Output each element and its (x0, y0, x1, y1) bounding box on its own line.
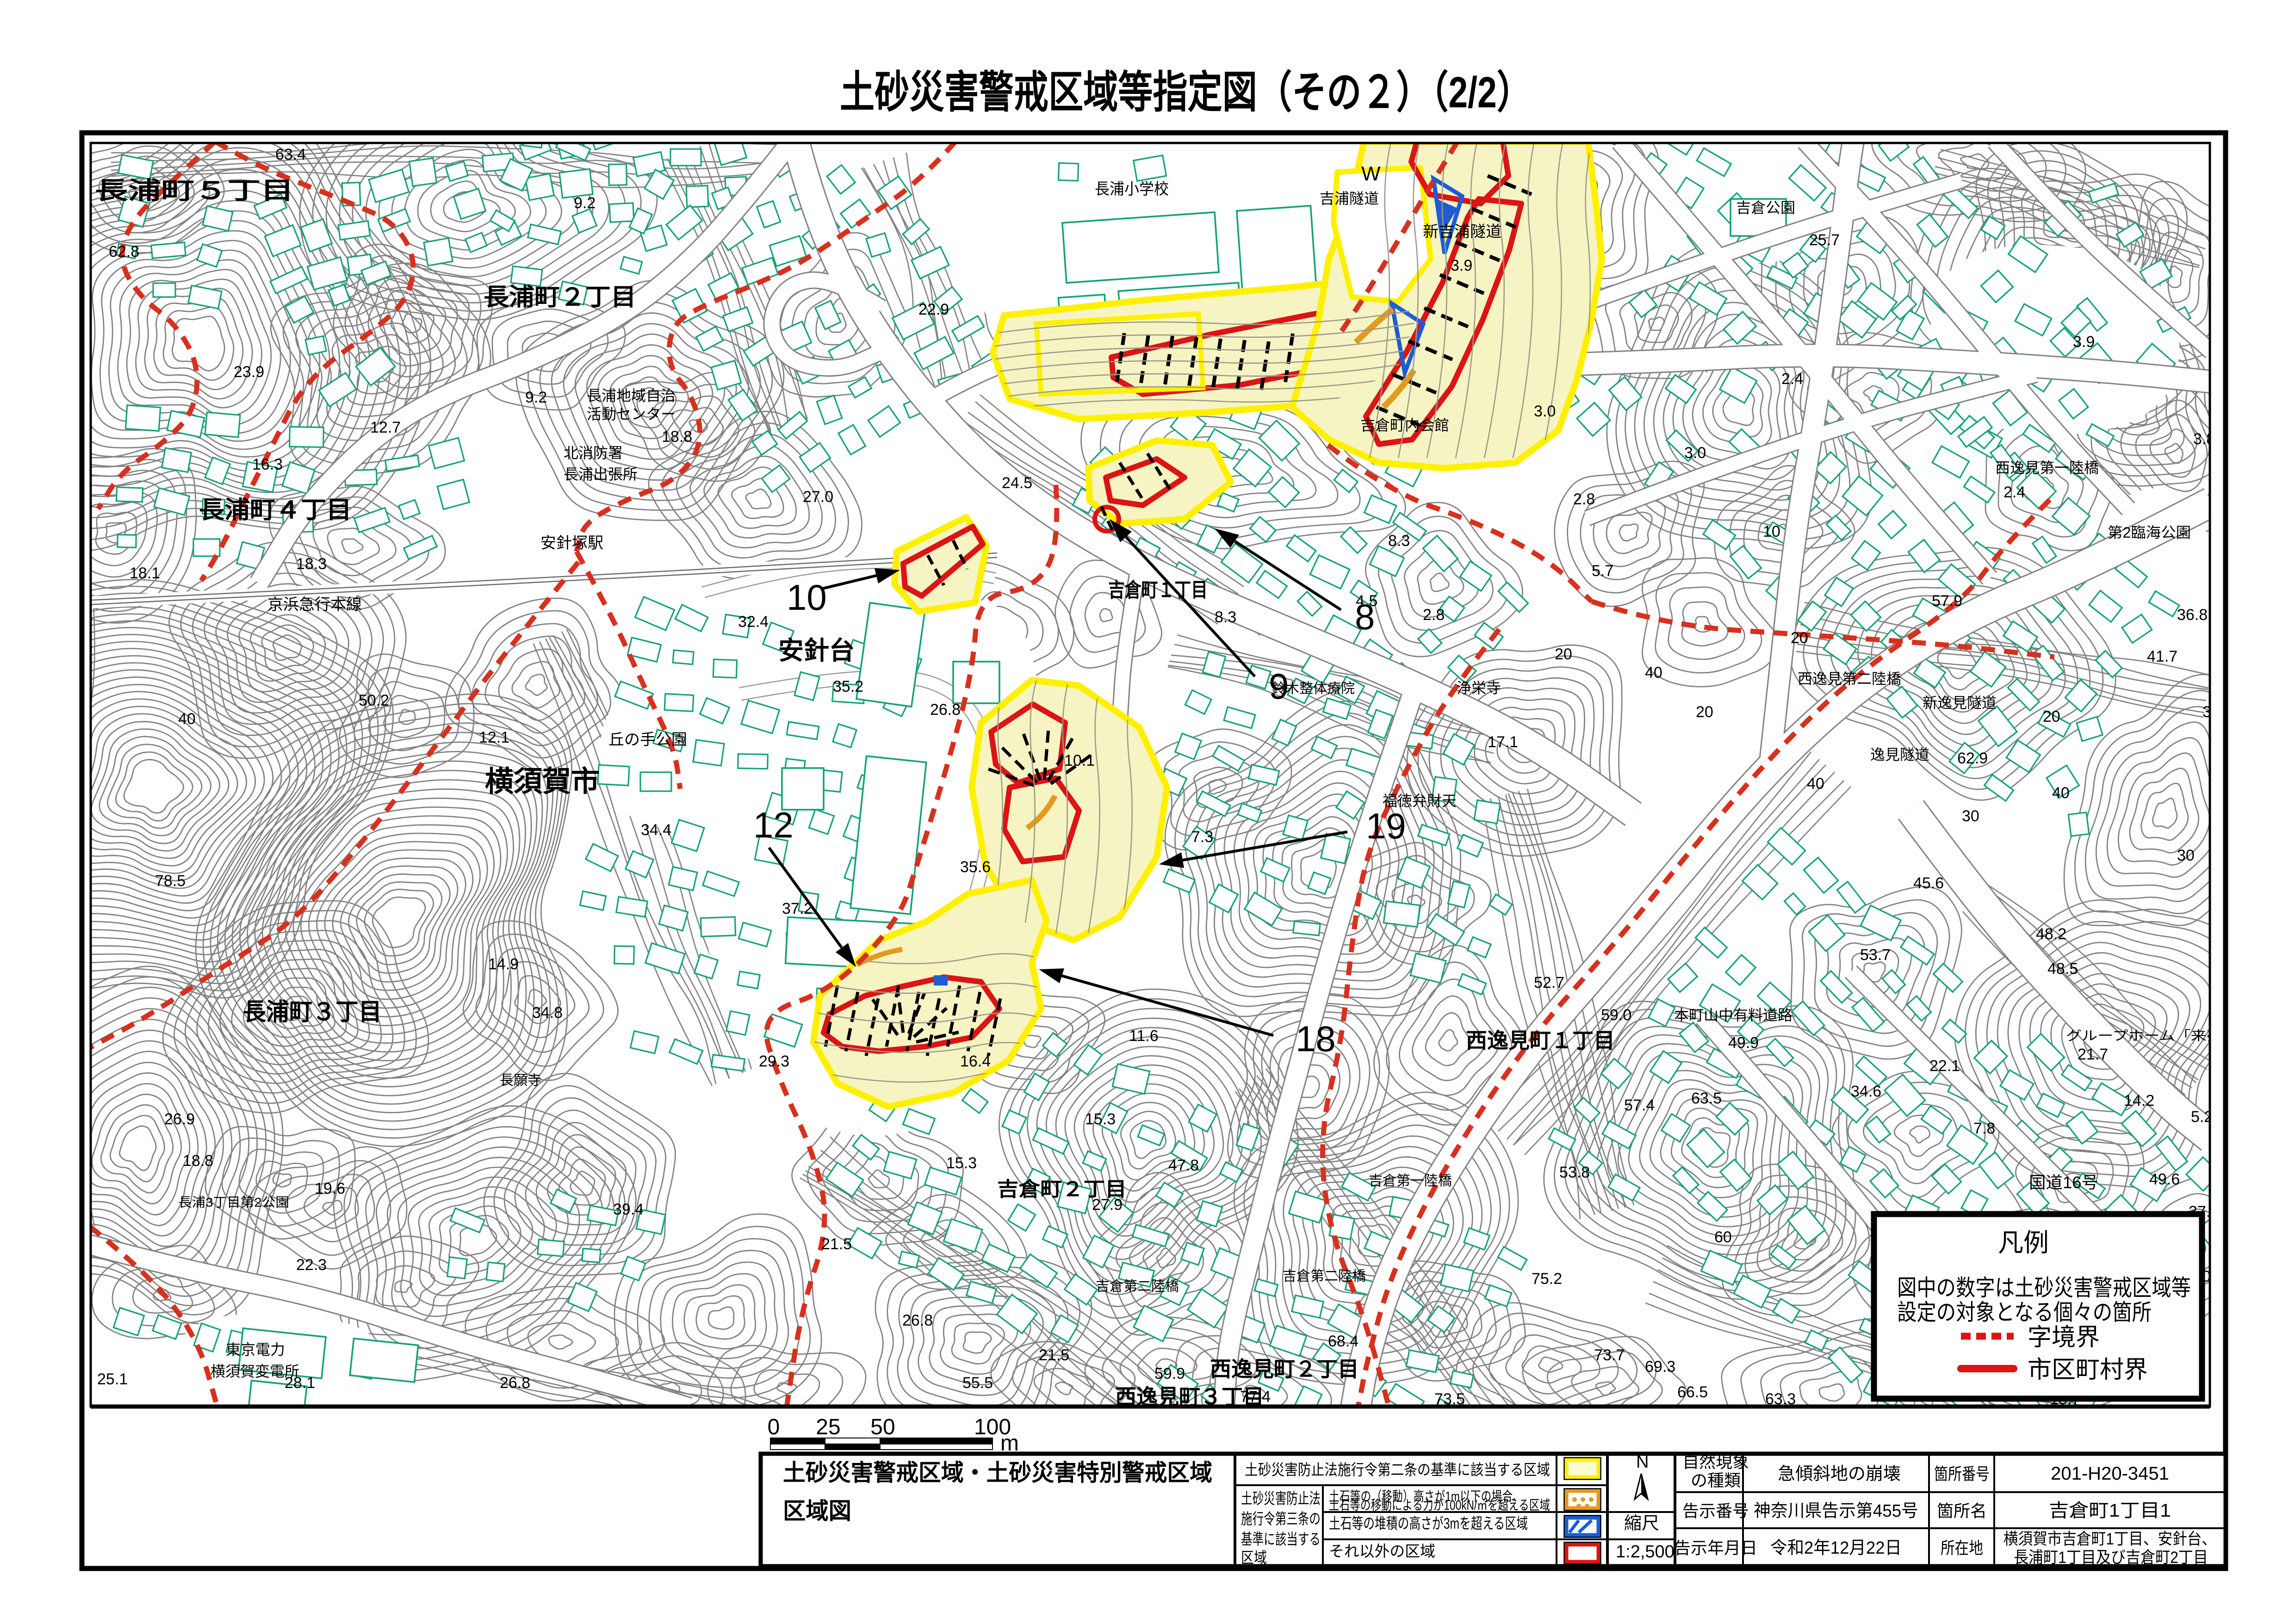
svg-text:福徳弁財天: 福徳弁財天 (1383, 793, 1457, 809)
svg-text:11.6: 11.6 (1129, 1027, 1159, 1045)
svg-text:21.5: 21.5 (821, 1235, 852, 1253)
svg-text:26.8: 26.8 (902, 1312, 933, 1329)
svg-text:19.6: 19.6 (315, 1180, 345, 1197)
svg-text:30: 30 (1962, 807, 1979, 825)
svg-text:区域図: 区域図 (783, 1498, 851, 1524)
svg-text:23.9: 23.9 (234, 363, 264, 381)
svg-text:8.3: 8.3 (1215, 608, 1236, 626)
svg-text:第2臨海公園: 第2臨海公園 (2108, 524, 2191, 541)
svg-text:土砂災害警戒区域・土砂災害特別警戒区域: 土砂災害警戒区域・土砂災害特別警戒区域 (783, 1460, 1212, 1486)
svg-text:48.5: 48.5 (2047, 960, 2078, 978)
svg-text:12: 12 (753, 805, 794, 845)
svg-text:吉倉第二陸橋: 吉倉第二陸橋 (1096, 1279, 1179, 1294)
svg-text:201-H20-3451: 201-H20-3451 (2051, 1463, 2169, 1484)
svg-text:16.4: 16.4 (960, 1053, 991, 1070)
svg-text:21.5: 21.5 (1039, 1346, 1069, 1364)
svg-text:9.2: 9.2 (525, 389, 547, 406)
svg-text:2.4: 2.4 (2003, 483, 2025, 501)
svg-text:7.8: 7.8 (1973, 1120, 1995, 1137)
svg-text:53.8: 53.8 (1559, 1164, 1590, 1181)
svg-text:鈴木整体療院: 鈴木整体療院 (1272, 681, 1355, 696)
svg-text:本町山中有料道路: 本町山中有料道路 (1674, 1007, 1793, 1023)
svg-text:26.8: 26.8 (500, 1374, 530, 1392)
svg-text:基準に該当する: 基準に該当する (1241, 1531, 1321, 1548)
svg-text:西逸見町２丁目: 西逸見町２丁目 (1210, 1357, 1359, 1381)
svg-text:4.5: 4.5 (1356, 592, 1377, 610)
svg-text:50: 50 (870, 1415, 895, 1439)
svg-text:東京電力: 東京電力 (226, 1341, 285, 1358)
svg-text:土石等の堆積の高さが3mを超える区域: 土石等の堆積の高さが3mを超える区域 (1329, 1515, 1528, 1532)
svg-text:25.7: 25.7 (1809, 231, 1840, 249)
svg-text:20: 20 (1696, 703, 1713, 721)
svg-text:西逸見第一陸橋: 西逸見第一陸橋 (1995, 459, 2099, 476)
svg-text:25.1: 25.1 (97, 1370, 128, 1388)
svg-text:所在地: 所在地 (1941, 1538, 1983, 1557)
svg-text:29.3: 29.3 (759, 1053, 789, 1070)
svg-text:それ以外の区域: それ以外の区域 (1329, 1543, 1435, 1560)
svg-text:40: 40 (178, 710, 196, 728)
svg-text:37.2: 37.2 (782, 900, 813, 917)
svg-text:12.7: 12.7 (370, 419, 401, 436)
svg-text:26.8: 26.8 (930, 701, 961, 719)
svg-text:35.2: 35.2 (833, 678, 863, 695)
svg-text:15.3: 15.3 (946, 1154, 977, 1172)
svg-text:36.8: 36.8 (2177, 606, 2208, 624)
svg-text:1:2,500: 1:2,500 (1616, 1542, 1675, 1562)
svg-text:39.4: 39.4 (613, 1201, 644, 1218)
svg-text:市区町村界: 市区町村界 (2028, 1357, 2148, 1383)
svg-text:14.2: 14.2 (2124, 1092, 2154, 1110)
svg-text:68.4: 68.4 (1328, 1333, 1358, 1350)
svg-text:箇所名: 箇所名 (1937, 1501, 1987, 1520)
svg-text:横須賀市: 横須賀市 (485, 766, 600, 798)
svg-text:浄栄寺: 浄栄寺 (1457, 680, 1501, 696)
svg-text:2.8: 2.8 (1423, 606, 1445, 624)
svg-text:設定の対象となる個々の箇所: 設定の対象となる個々の箇所 (1897, 1300, 2152, 1325)
svg-text:自然現象: 自然現象 (1682, 1452, 1749, 1471)
svg-text:22.3: 22.3 (296, 1256, 327, 1274)
svg-text:12.1: 12.1 (479, 729, 509, 746)
svg-text:50.2: 50.2 (359, 692, 389, 709)
svg-text:告示年月日: 告示年月日 (1674, 1538, 1757, 1557)
svg-text:凡例: 凡例 (1998, 1228, 2049, 1257)
svg-text:40: 40 (1645, 664, 1662, 682)
svg-text:22.1: 22.1 (1929, 1057, 1960, 1075)
svg-text:77.4: 77.4 (1240, 1388, 1271, 1406)
svg-text:3.0: 3.0 (1534, 403, 1556, 420)
svg-text:69.3: 69.3 (1645, 1358, 1675, 1376)
svg-text:逸見隧道: 逸見隧道 (1870, 746, 1929, 763)
svg-text:長浦3丁目第2公園: 長浦3丁目第2公園 (178, 1195, 289, 1209)
svg-text:47.8: 47.8 (1168, 1157, 1199, 1174)
svg-text:5.7: 5.7 (1592, 562, 1613, 580)
svg-text:10: 10 (1763, 523, 1780, 540)
svg-text:2.4: 2.4 (1781, 370, 1803, 388)
svg-text:19: 19 (1366, 806, 1406, 846)
svg-text:78.5: 78.5 (155, 872, 186, 890)
svg-text:図中の数字は土砂災害警戒区域等: 図中の数字は土砂災害警戒区域等 (1897, 1276, 2191, 1301)
svg-text:63.5: 63.5 (1691, 1090, 1722, 1107)
svg-text:安針塚駅: 安針塚駅 (540, 534, 603, 552)
svg-text:14.9: 14.9 (488, 955, 519, 973)
svg-text:長浦町４丁目: 長浦町４丁目 (199, 497, 352, 524)
svg-text:48.2: 48.2 (2036, 925, 2066, 943)
svg-text:16.3: 16.3 (252, 456, 283, 473)
svg-text:吉倉町１丁目: 吉倉町１丁目 (1108, 579, 1208, 601)
svg-text:57.9: 57.9 (1932, 592, 1962, 610)
svg-text:長浦地域自治: 長浦地域自治 (587, 387, 676, 404)
svg-text:41.7: 41.7 (2147, 648, 2177, 665)
svg-text:長浦小学校: 長浦小学校 (1095, 180, 1169, 198)
svg-text:土砂災害防止法施行令第二条の基準に該当する区域: 土砂災害防止法施行令第二条の基準に該当する区域 (1245, 1461, 1550, 1478)
svg-text:63.4: 63.4 (275, 146, 306, 163)
svg-text:73.7: 73.7 (1594, 1346, 1625, 1364)
svg-text:20: 20 (1555, 645, 1572, 663)
svg-text:10: 10 (787, 577, 827, 618)
svg-text:66.5: 66.5 (1677, 1383, 1708, 1401)
svg-text:西逸見町１丁目: 西逸見町１丁目 (1466, 1029, 1615, 1053)
svg-text:34.8: 34.8 (532, 1004, 563, 1022)
svg-text:25: 25 (816, 1415, 840, 1439)
svg-text:国道16号: 国道16号 (2029, 1173, 2098, 1192)
svg-text:京浜急行本線: 京浜急行本線 (267, 596, 362, 614)
svg-text:49.9: 49.9 (1728, 1034, 1759, 1052)
svg-text:吉倉公園: 吉倉公園 (1736, 199, 1795, 216)
svg-text:の種類: の種類 (1691, 1471, 1741, 1490)
svg-text:吉倉第一陸橋: 吉倉第一陸橋 (1369, 1173, 1452, 1189)
svg-text:18.3: 18.3 (296, 555, 327, 573)
svg-text:18.8: 18.8 (662, 428, 692, 446)
svg-text:活動センター: 活動センター (587, 406, 676, 422)
svg-text:土石等の移動による力が100kN/㎡を超える区域: 土石等の移動による力が100kN/㎡を超える区域 (1329, 1498, 1550, 1513)
svg-text:34.4: 34.4 (641, 821, 671, 839)
svg-text:吉浦隧道: 吉浦隧道 (1320, 190, 1379, 207)
svg-text:40: 40 (2052, 784, 2070, 802)
svg-text:59.0: 59.0 (1601, 1006, 1631, 1024)
svg-text:49.6: 49.6 (2149, 1171, 2180, 1188)
svg-text:土砂災害警戒区域等指定図（その２）（2/2）: 土砂災害警戒区域等指定図（その２）（2/2） (840, 68, 1532, 117)
svg-text:神奈川県告示第455号: 神奈川県告示第455号 (1754, 1501, 1918, 1521)
svg-text:57.4: 57.4 (1624, 1097, 1655, 1114)
svg-text:60: 60 (1714, 1228, 1732, 1246)
svg-text:西逸見第二陸橋: 西逸見第二陸橋 (1798, 670, 1901, 687)
svg-text:告示番号: 告示番号 (1682, 1501, 1749, 1520)
svg-text:59.9: 59.9 (1154, 1365, 1185, 1382)
svg-text:施行令第三条の: 施行令第三条の (1241, 1510, 1321, 1527)
svg-text:40: 40 (1807, 775, 1824, 793)
svg-text:8.3: 8.3 (1388, 532, 1410, 550)
svg-text:W: W (1361, 162, 1381, 185)
svg-text:28.1: 28.1 (285, 1374, 315, 1392)
svg-text:令和2年12月22日: 令和2年12月22日 (1770, 1538, 1902, 1558)
svg-text:18.1: 18.1 (130, 564, 160, 582)
svg-text:新吉浦隧道: 新吉浦隧道 (1423, 223, 1501, 241)
svg-text:急傾斜地の崩壊: 急傾斜地の崩壊 (1778, 1464, 1901, 1484)
svg-text:10.1: 10.1 (1064, 752, 1095, 769)
svg-text:新逸見隧道: 新逸見隧道 (1923, 694, 1997, 711)
svg-text:45.6: 45.6 (1913, 874, 1944, 892)
svg-text:3.9: 3.9 (1451, 257, 1472, 274)
svg-text:17.1: 17.1 (1488, 733, 1518, 751)
svg-text:55.5: 55.5 (962, 1374, 993, 1392)
svg-text:24.5: 24.5 (1002, 474, 1032, 492)
svg-text:長浦町５丁目: 長浦町５丁目 (95, 178, 294, 205)
svg-text:34.6: 34.6 (1851, 1083, 1881, 1100)
svg-text:18: 18 (1296, 1018, 1336, 1059)
svg-text:横須賀市吉倉町1丁目、安針台、: 横須賀市吉倉町1丁目、安針台、 (2003, 1530, 2216, 1548)
svg-text:27.9: 27.9 (1092, 1196, 1123, 1214)
svg-text:62.9: 62.9 (1957, 750, 1988, 767)
svg-text:15.3: 15.3 (1085, 1110, 1116, 1128)
svg-text:9.2: 9.2 (574, 194, 595, 212)
svg-text:吉倉町内会館: 吉倉町内会館 (1360, 417, 1449, 434)
svg-text:長浦町２丁目: 長浦町２丁目 (484, 284, 636, 311)
svg-text:縮尺: 縮尺 (1624, 1514, 1659, 1533)
svg-text:N: N (1636, 1452, 1649, 1472)
svg-text:長願寺: 長願寺 (500, 1073, 541, 1088)
svg-text:安針台: 安針台 (778, 636, 855, 665)
svg-text:箇所番号: 箇所番号 (1934, 1464, 1990, 1483)
svg-text:27.0: 27.0 (803, 488, 833, 506)
svg-text:2.8: 2.8 (1573, 490, 1595, 508)
svg-text:75.2: 75.2 (1532, 1270, 1562, 1288)
svg-text:長浦町３丁目: 長浦町３丁目 (243, 999, 382, 1026)
svg-text:3.0: 3.0 (1684, 444, 1706, 462)
svg-text:長浦出張所: 長浦出張所 (564, 466, 638, 483)
svg-text:3.9: 3.9 (2073, 333, 2095, 351)
svg-text:21.7: 21.7 (2078, 1046, 2108, 1063)
svg-text:20: 20 (2043, 708, 2060, 725)
svg-text:吉倉第二陸橋: 吉倉第二陸橋 (1283, 1269, 1366, 1284)
svg-text:20: 20 (1791, 629, 1808, 647)
svg-text:吉倉町1丁目1: 吉倉町1丁目1 (2049, 1500, 2171, 1521)
svg-text:長浦町1丁目及び吉倉町2丁目: 長浦町1丁目及び吉倉町2丁目 (2014, 1549, 2208, 1567)
svg-text:字境界: 字境界 (2028, 1324, 2100, 1351)
svg-text:北消防署: 北消防署 (564, 445, 623, 461)
svg-text:区域: 区域 (1241, 1549, 1267, 1566)
svg-text:26.9: 26.9 (164, 1110, 195, 1128)
svg-text:7.3: 7.3 (1191, 828, 1213, 846)
svg-text:53.7: 53.7 (1860, 946, 1891, 964)
svg-text:30: 30 (2177, 847, 2195, 864)
svg-text:62.8: 62.8 (109, 243, 139, 260)
svg-text:22.9: 22.9 (918, 301, 949, 318)
svg-text:土砂災害防止法: 土砂災害防止法 (1241, 1490, 1321, 1507)
svg-text:35.6: 35.6 (960, 858, 991, 876)
svg-text:丘の手公園: 丘の手公園 (608, 731, 687, 749)
svg-text:52.7: 52.7 (1534, 974, 1564, 992)
svg-text:0: 0 (768, 1415, 780, 1439)
svg-text:32.4: 32.4 (738, 613, 769, 631)
svg-text:18.8: 18.8 (183, 1152, 213, 1170)
